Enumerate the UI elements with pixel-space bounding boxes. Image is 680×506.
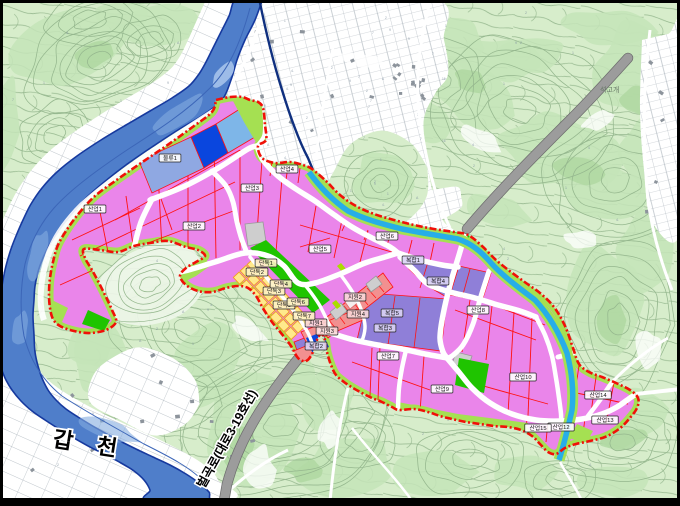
- svg-text:2: 2: [306, 116, 308, 120]
- svg-text:1: 1: [43, 81, 45, 85]
- svg-text:1: 1: [350, 189, 352, 193]
- svg-text:7: 7: [363, 136, 365, 140]
- svg-text:2: 2: [413, 80, 415, 84]
- svg-text:2: 2: [366, 89, 368, 93]
- svg-text:7: 7: [432, 52, 434, 56]
- svg-text:16: 16: [442, 77, 446, 81]
- svg-text:단독3: 단독3: [267, 287, 281, 295]
- svg-text:9: 9: [408, 37, 410, 41]
- svg-text:지원3: 지원3: [320, 327, 334, 335]
- svg-text:1: 1: [445, 24, 447, 28]
- svg-text:9: 9: [349, 79, 351, 83]
- svg-text:9: 9: [389, 28, 391, 32]
- svg-text:복합2: 복합2: [309, 342, 323, 350]
- svg-text:4: 4: [503, 247, 505, 251]
- svg-text:7: 7: [372, 31, 374, 35]
- svg-text:4.: 4.: [210, 303, 213, 307]
- svg-text:9: 9: [167, 81, 169, 85]
- svg-text:16: 16: [442, 139, 446, 143]
- svg-text:산업7: 산업7: [381, 352, 395, 360]
- svg-text:9: 9: [264, 104, 266, 108]
- svg-text:4: 4: [588, 146, 590, 150]
- svg-text:2: 2: [520, 41, 522, 45]
- svg-text:복합5: 복합5: [385, 309, 399, 317]
- svg-text:산업13: 산업13: [596, 416, 613, 424]
- svg-text:9: 9: [515, 41, 517, 45]
- svg-text:2: 2: [473, 164, 475, 168]
- svg-text:산업4: 산업4: [280, 165, 295, 173]
- svg-text:복합4: 복합4: [431, 277, 446, 285]
- svg-text:산업9: 산업9: [435, 385, 449, 393]
- svg-text:1: 1: [503, 82, 505, 86]
- svg-text:산업5: 산업5: [313, 245, 327, 253]
- svg-text:7: 7: [370, 99, 372, 103]
- svg-text:단독6: 단독6: [291, 298, 305, 306]
- svg-text:4.: 4.: [286, 87, 289, 91]
- svg-text:산업8: 산업8: [471, 306, 485, 314]
- svg-text:석고개: 석고개: [600, 85, 619, 94]
- svg-text:2: 2: [156, 327, 158, 331]
- svg-text:산업2: 산업2: [187, 222, 201, 230]
- svg-text:1: 1: [380, 158, 382, 162]
- svg-text:4.: 4.: [616, 218, 619, 222]
- svg-text:7: 7: [358, 75, 360, 79]
- svg-text:2: 2: [525, 11, 527, 15]
- svg-text:2: 2: [422, 432, 424, 436]
- svg-text:산업12: 산업12: [552, 423, 569, 431]
- svg-text:단독2: 단독2: [250, 268, 264, 276]
- svg-text:산업3: 산업3: [245, 184, 259, 192]
- svg-text:1: 1: [387, 192, 389, 196]
- svg-text:4.: 4.: [66, 31, 69, 35]
- svg-text:2: 2: [385, 16, 387, 20]
- svg-text:단독7: 단독7: [297, 312, 311, 320]
- svg-text:1: 1: [284, 19, 286, 23]
- svg-text:산업1: 산업1: [88, 205, 102, 213]
- svg-text:4.: 4.: [284, 156, 287, 160]
- svg-text:복합1: 복합1: [406, 256, 420, 264]
- svg-text:4.: 4.: [291, 69, 294, 73]
- svg-text:1: 1: [120, 99, 122, 103]
- svg-text:물류1: 물류1: [163, 155, 177, 162]
- svg-text:9: 9: [290, 83, 292, 87]
- svg-text:산업10: 산업10: [514, 373, 531, 381]
- svg-text:4.: 4.: [589, 463, 592, 467]
- svg-text:9: 9: [207, 308, 209, 312]
- svg-text:산업6: 산업6: [380, 232, 394, 240]
- svg-text:4: 4: [472, 143, 474, 147]
- svg-text:1: 1: [565, 186, 567, 190]
- svg-text:지원4: 지원4: [351, 310, 366, 318]
- svg-text:1: 1: [192, 342, 194, 346]
- svg-text:2: 2: [331, 66, 333, 70]
- svg-text:복합3: 복합3: [378, 324, 392, 332]
- svg-text:2: 2: [507, 257, 509, 261]
- svg-text:2: 2: [57, 463, 59, 467]
- svg-text:9: 9: [374, 182, 376, 186]
- svg-text:산업14: 산업14: [589, 391, 607, 399]
- svg-text:4.: 4.: [382, 203, 385, 207]
- svg-text:4: 4: [156, 259, 158, 263]
- svg-text:7: 7: [12, 98, 14, 102]
- svg-text:지원2: 지원2: [348, 293, 362, 301]
- svg-text:단독4: 단독4: [274, 280, 289, 288]
- svg-text:7: 7: [368, 105, 370, 109]
- svg-text:7: 7: [118, 363, 120, 367]
- svg-text:단독1: 단독1: [259, 259, 273, 267]
- svg-text:1: 1: [572, 51, 574, 55]
- svg-text:산업15: 산업15: [529, 424, 546, 432]
- svg-text:지원1: 지원1: [309, 319, 323, 327]
